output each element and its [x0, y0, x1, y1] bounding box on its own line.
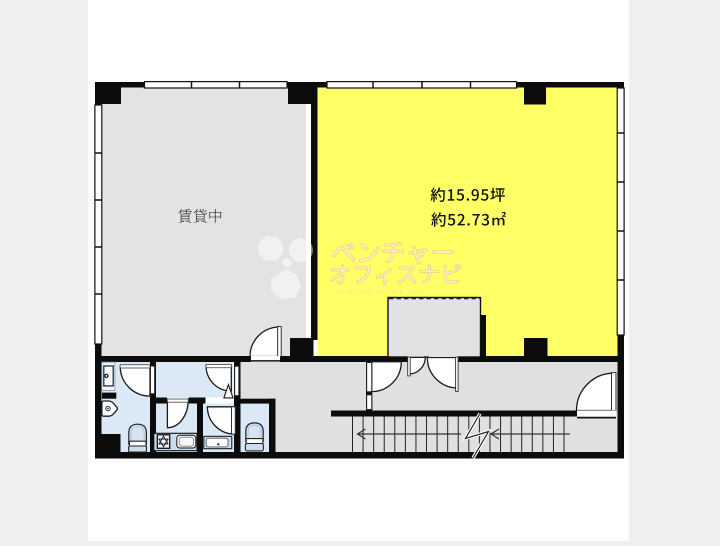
- svg-text:VENTURE OFFICE NAVI: VENTURE OFFICE NAVI: [337, 289, 426, 296]
